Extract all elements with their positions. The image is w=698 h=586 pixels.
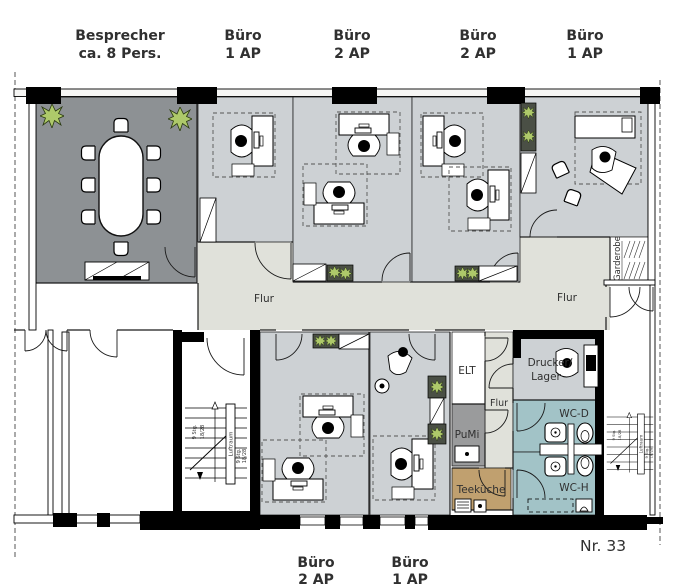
label-buero-bottom1-line2: 2 AP [298,572,334,586]
label-garderobe: Garderobe [613,236,623,281]
door-stair-vestibule [207,338,244,375]
planter [521,103,536,151]
label-buero4-line1: Büro [566,28,604,44]
label-buero-bottom1-line1: Büro [297,555,335,571]
sideboard [85,262,149,280]
shelf [479,266,517,281]
floor-plan-drawing: Luftraum 9 Stg. 18/28 9 Stg. 18/28 [0,0,698,586]
door-left-single [90,330,117,357]
shelf [293,264,326,281]
planter [428,424,446,444]
label-wc-h: WC-H [559,482,588,494]
door-corridor-end-a [610,287,640,317]
label-buero-bottom2-line1: Büro [391,555,429,571]
printer-icon [586,355,596,371]
conference-table [99,136,143,236]
label-buero1-line1: Büro [224,28,262,44]
urinal [576,499,592,512]
shelf [339,334,369,349]
pumi-sink [455,446,479,462]
planter [428,376,446,398]
person-head [398,347,408,357]
monitor-icon [622,118,632,132]
planter [327,265,353,281]
planter [313,334,339,348]
label-besprecher-line1: Besprecher [75,28,165,44]
planter [455,266,479,281]
stairs-right [607,413,654,475]
label-drucker-line1: Drucker/ [528,357,573,369]
label-besprecher-line2: ca. 8 Pers. [79,46,162,62]
label-buero3-line1: Büro [459,28,497,44]
label-flur-small: Flur [490,398,508,409]
label-flur-right: Flur [557,292,578,304]
label-teekueche: Teeküche [456,484,506,496]
label-buero2-line2: 2 AP [334,46,370,62]
door-left-double [25,330,67,351]
stairs-left [185,402,248,484]
label-drucker-line2: Lager [531,371,561,383]
stool [375,379,389,393]
label-buero2-line1: Büro [333,28,371,44]
plan-number: Nr. 33 [580,537,626,555]
label-buero1-line2: 1 AP [225,46,261,62]
toilet [577,456,593,476]
kitchen-appliances [455,499,486,512]
toilet [577,423,593,443]
label-flur-left: Flur [254,293,275,305]
label-buero3-line2: 2 AP [460,46,496,62]
shelf [521,153,536,193]
label-wc-d: WC-D [559,408,589,420]
label-buero-bottom2-line2: 1 AP [392,572,428,586]
floorplan-page: Luftraum 9 Stg. 18/28 9 Stg. 18/28 [0,0,698,586]
shelf [200,198,216,242]
label-pumi: PuMi [455,429,480,441]
shelf [430,398,444,424]
label-buero4-line2: 1 AP [567,46,603,62]
label-elt: ELT [458,365,476,377]
person-head [600,152,611,163]
